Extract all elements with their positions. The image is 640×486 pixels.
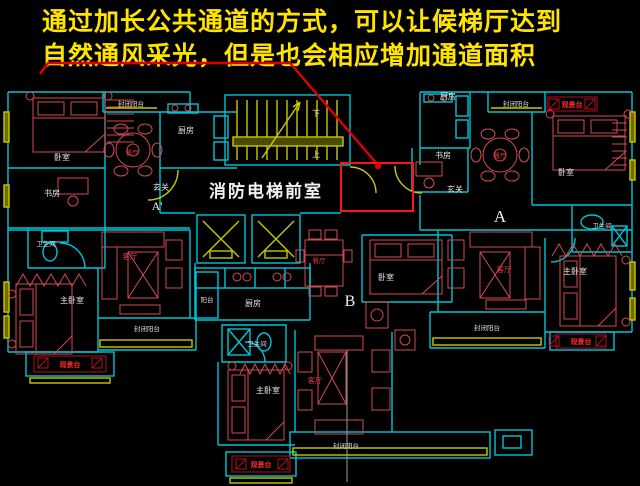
room-label-master-bedroom: 主卧室: [563, 266, 587, 276]
room-label-bedroom: 卧室: [54, 152, 70, 162]
ac-unit-icon: [38, 358, 48, 368]
bed-icon: [370, 240, 442, 294]
room-label-dining: 餐厅: [494, 151, 508, 160]
room-label-enclosed-balcony: 封闭阳台: [118, 99, 144, 108]
room-label-entry: 玄关: [447, 184, 463, 194]
section-mark-b: B: [345, 293, 356, 310]
room-label-bath: 卫生间: [592, 221, 612, 230]
stair-label-up: 上: [312, 150, 320, 159]
room-label-study: 书房: [435, 150, 451, 160]
cad-viewport: 通过加长公共通道的方式，可以让候梯厅达到 自然通风采光，但是也会相应增加通道面积: [0, 0, 640, 486]
view-deck-label: 观景台: [571, 337, 592, 346]
room-label-master-bedroom: 主卧室: [256, 385, 280, 395]
room-label-living: 客厅: [123, 251, 138, 261]
view-deck-label: 观景台: [562, 100, 583, 109]
room-label-master-bedroom: 主卧室: [60, 295, 84, 305]
room-label-kitchen: 厨房: [245, 298, 261, 308]
ac-unit-icon: [278, 459, 288, 469]
ac-unit-icon: [236, 459, 246, 469]
room-label-living: 客厅: [308, 375, 323, 385]
room-label-bath: 卫生间: [247, 339, 267, 348]
room-label-enclosed-balcony: 封闭阳台: [134, 324, 160, 333]
stair-label-down: 下: [312, 109, 320, 118]
bed-icon: [16, 284, 72, 354]
ac-unit-icon: [585, 99, 595, 109]
ac-unit-icon: [549, 99, 559, 109]
room-label-enclosed-balcony: 封闭阳台: [474, 323, 500, 332]
room-label-study: 书房: [44, 188, 60, 198]
room-label-enclosed-balcony: 封闭阳台: [503, 99, 529, 108]
highlight-box: [341, 163, 413, 211]
bed-icon: [33, 98, 105, 152]
room-label-balcony: 阳台: [201, 295, 214, 304]
section-mark-a: A: [494, 207, 507, 226]
room-label-kitchen: 厨房: [440, 91, 456, 101]
section-mark-a-prime: A': [152, 199, 163, 213]
room-label-dining: 餐厅: [126, 148, 140, 157]
room-label-entry: 玄关: [153, 182, 169, 192]
room-label-enclosed-balcony: 封闭阳台: [333, 441, 359, 450]
view-deck-label: 观景台: [251, 460, 272, 469]
bed-icon: [228, 370, 284, 440]
callout-dot: [375, 163, 381, 169]
view-deck-label: 观景台: [60, 360, 81, 369]
room-label-dining: 餐厅: [313, 256, 327, 265]
bed-icon: [553, 116, 625, 170]
ac-unit-icon: [596, 336, 606, 346]
wall-knob-icons: [8, 92, 632, 370]
room-label-living: 客厅: [497, 264, 512, 274]
furniture-layer: [8, 92, 632, 472]
room-label-bedroom: 卧室: [378, 272, 394, 282]
room-label-kitchen: 厨房: [178, 125, 194, 135]
highlight-layer: 消防电梯前室: [40, 63, 413, 211]
room-label-bath: 卫生间: [36, 239, 56, 248]
ac-unit-icon: [92, 358, 102, 368]
room-label-bedroom: 卧室: [558, 167, 574, 177]
floorplan-drawing: 卧室 书房 厨房 玄关 主卧室 封闭阳台 卫生间 封闭阳台 阳台 餐厅 客厅 厨…: [0, 0, 640, 486]
fire-elevator-lobby-label: 消防电梯前室: [209, 181, 323, 201]
